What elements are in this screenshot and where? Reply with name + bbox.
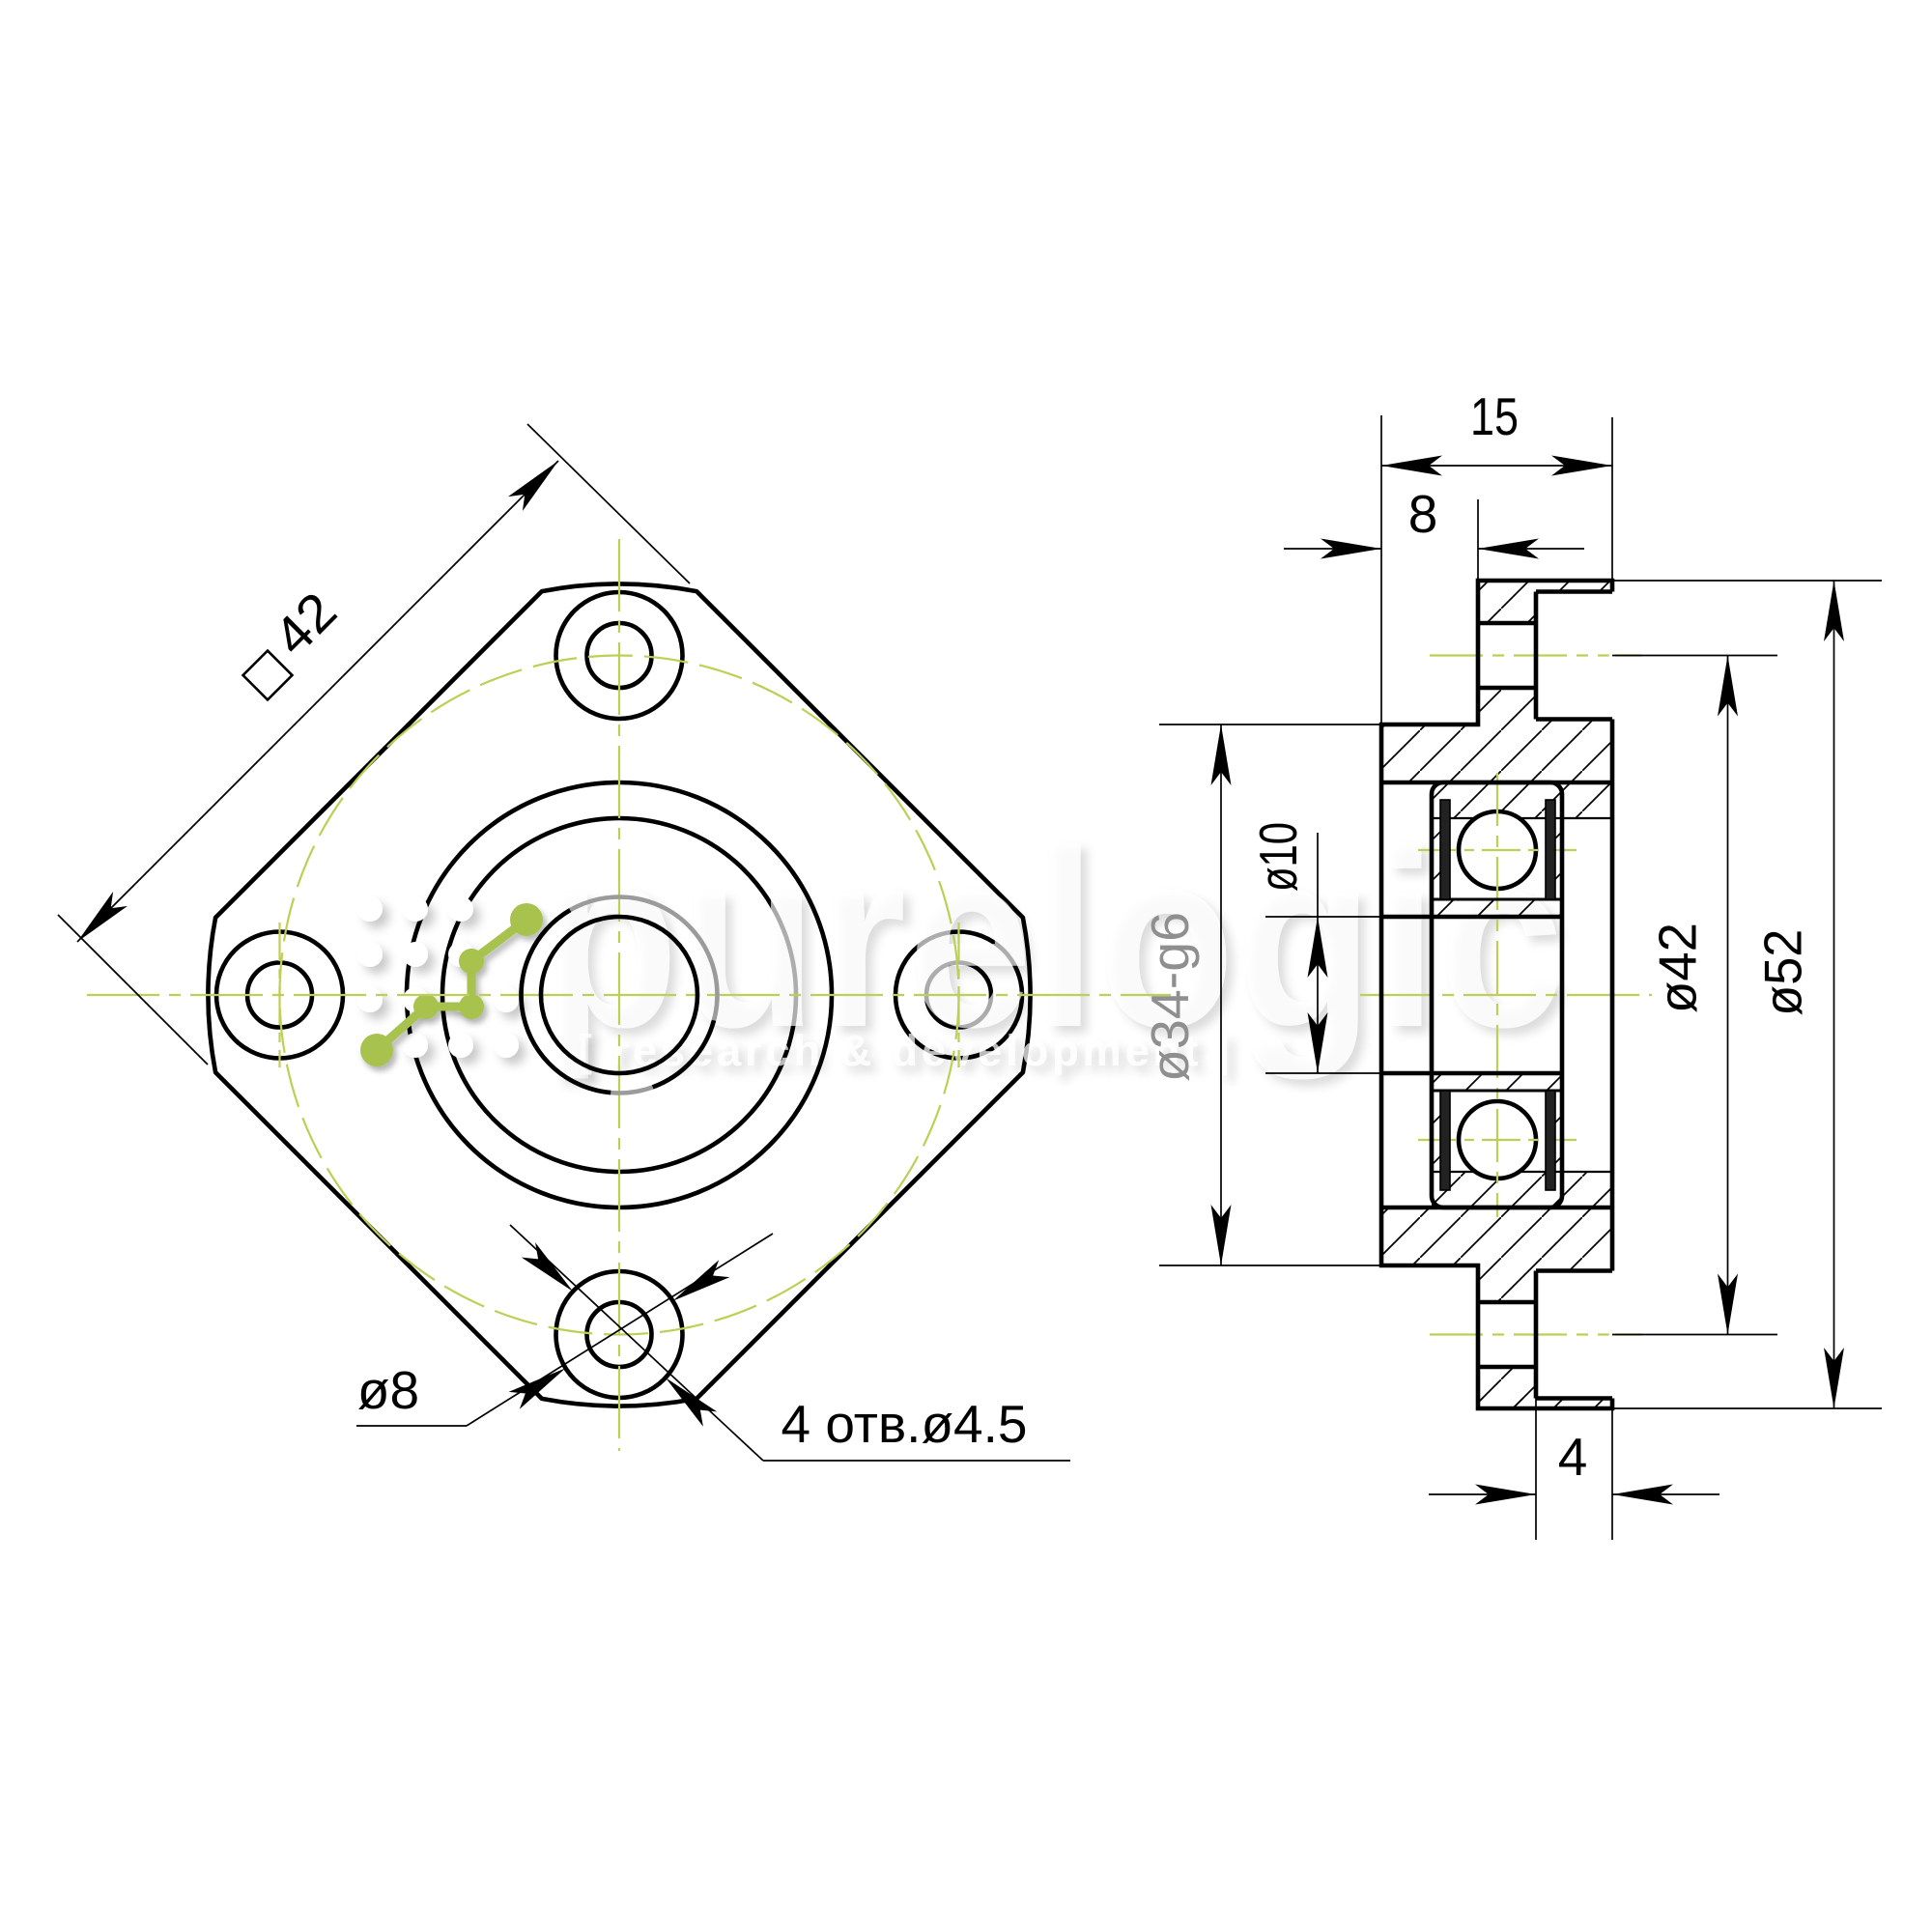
svg-text:8: 8 xyxy=(1408,484,1438,544)
svg-text:ø42: ø42 xyxy=(1648,923,1708,1013)
svg-text:ø8: ø8 xyxy=(357,1360,419,1420)
svg-text:4 отв.ø4.5: 4 отв.ø4.5 xyxy=(781,1394,1028,1454)
svg-text:ø52: ø52 xyxy=(1753,929,1813,1016)
svg-text:ø10: ø10 xyxy=(1248,822,1308,892)
svg-text:4: 4 xyxy=(1558,1427,1588,1487)
svg-text:ø34-g6: ø34-g6 xyxy=(1140,912,1200,1082)
svg-text:15: 15 xyxy=(1470,386,1519,446)
